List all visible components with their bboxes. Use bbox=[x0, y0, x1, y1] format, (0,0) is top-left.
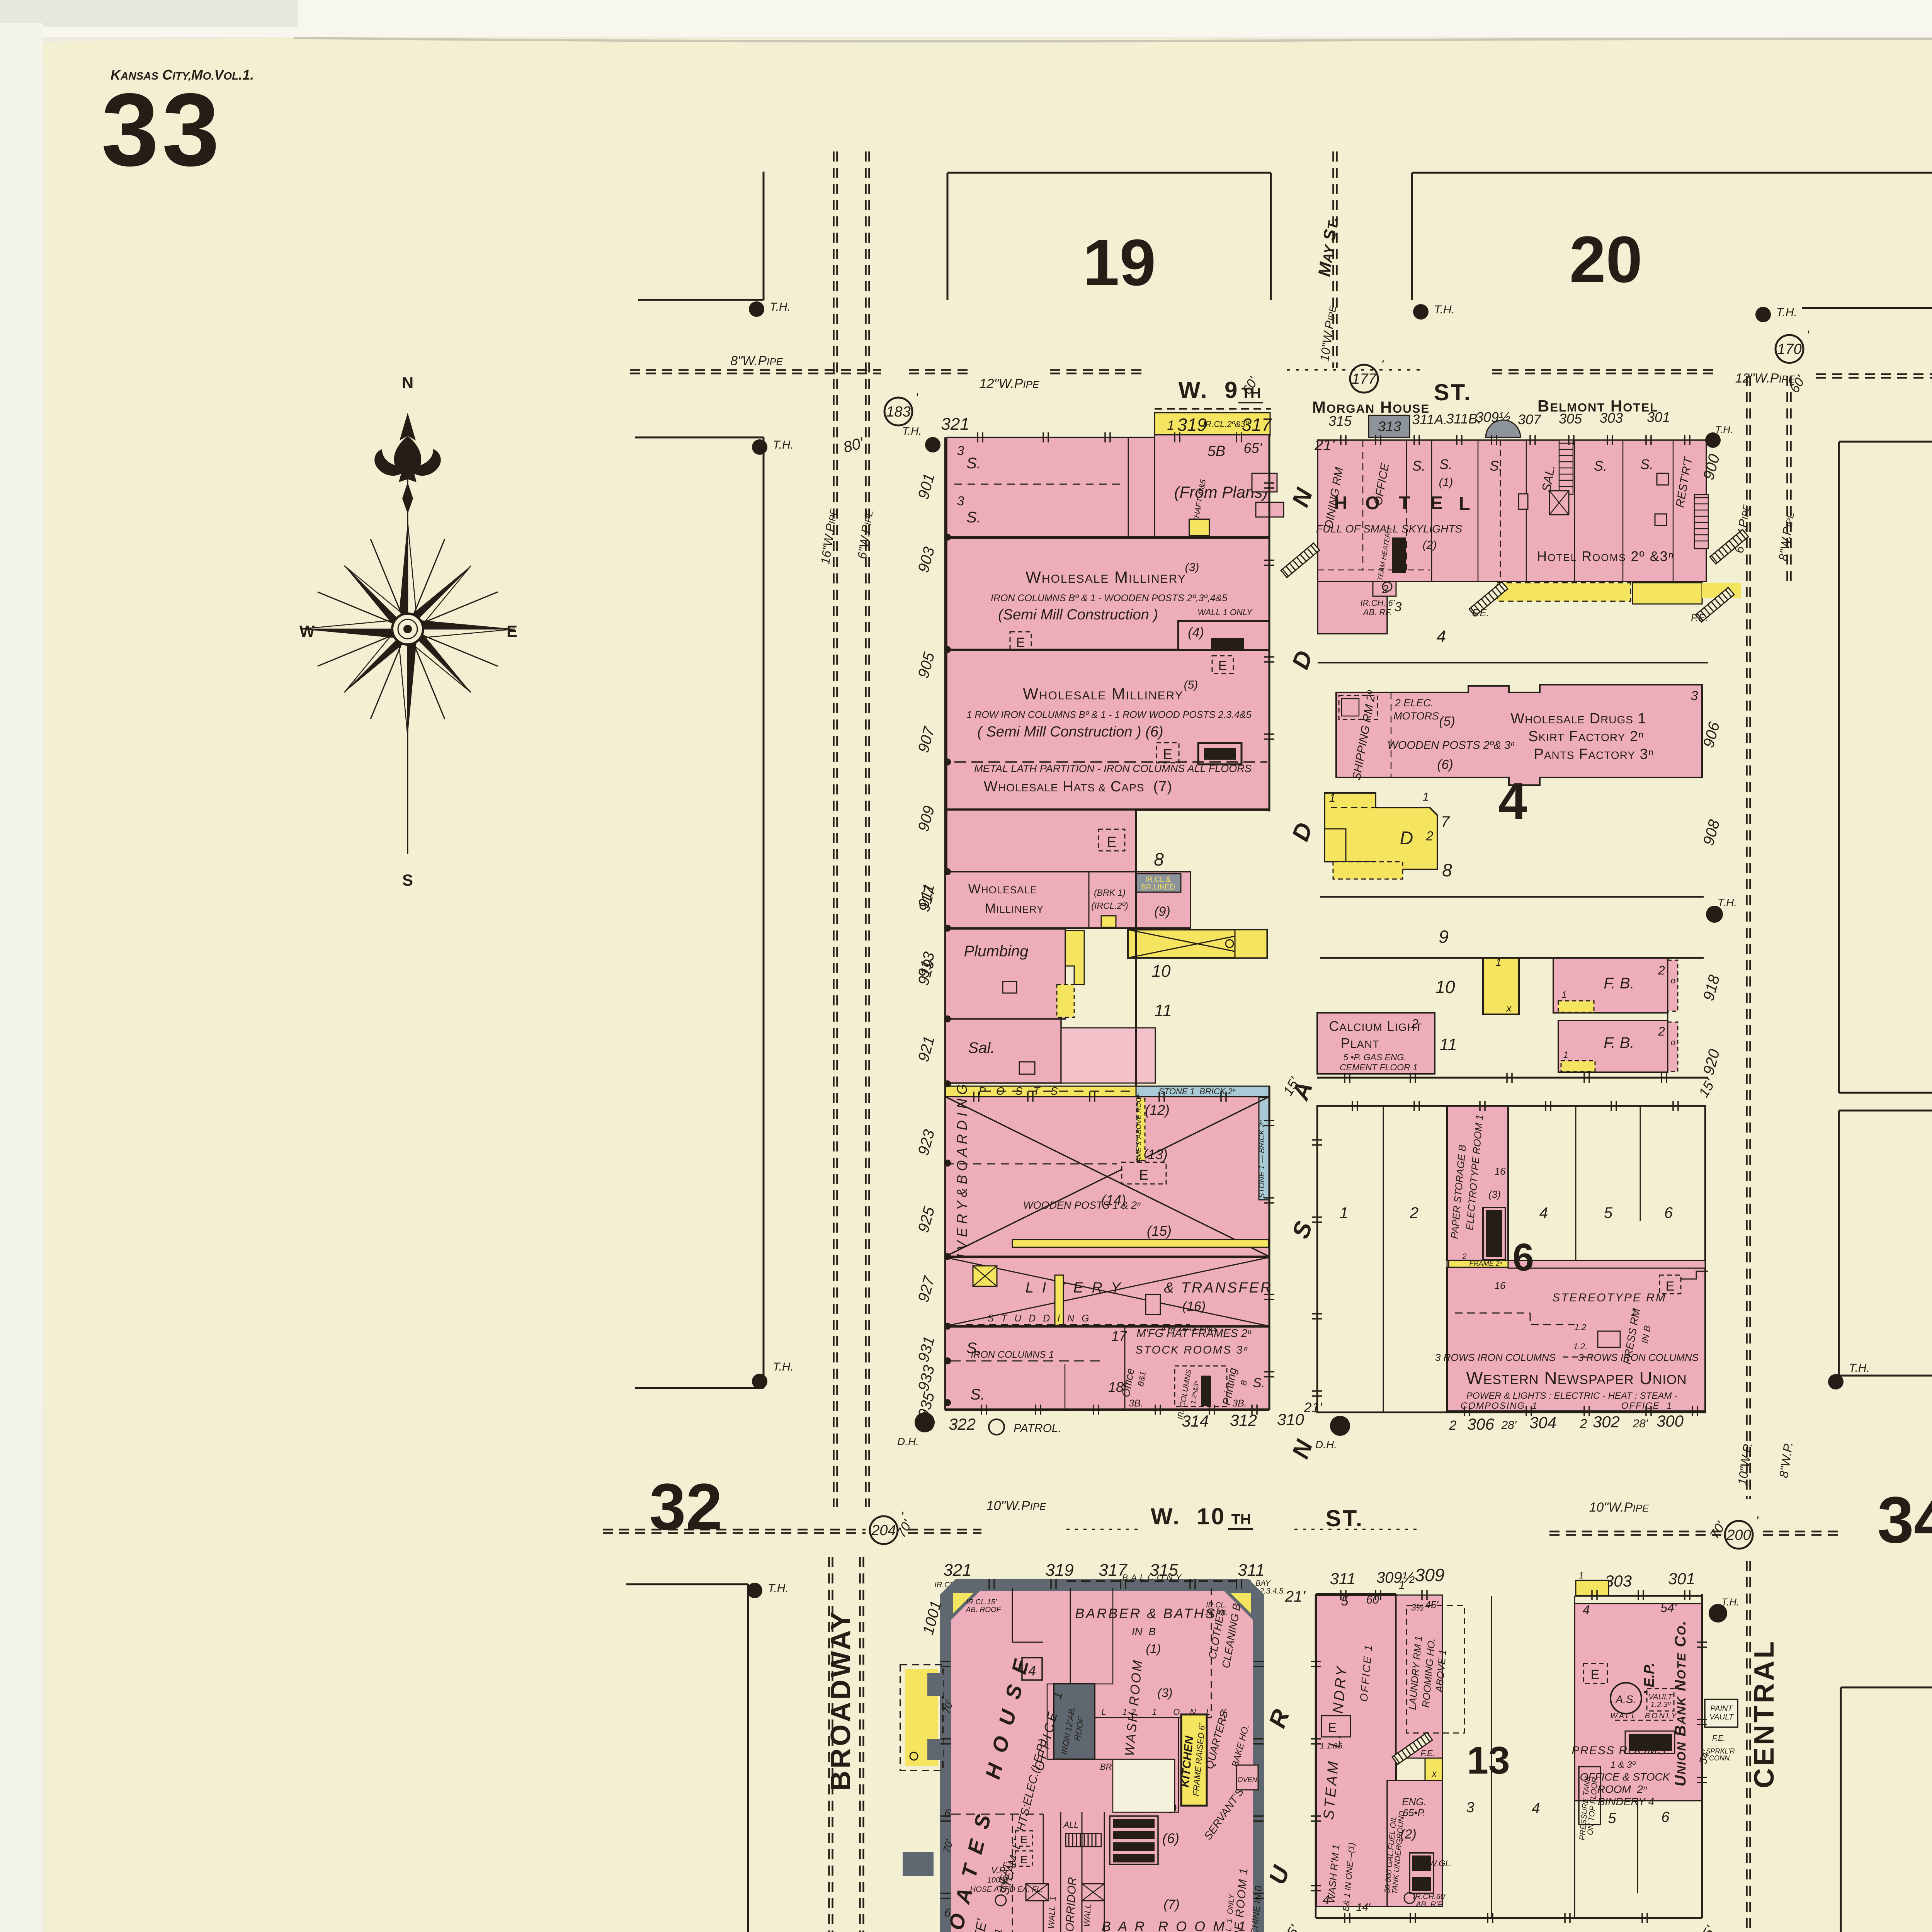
svg-text:200: 200 bbox=[1726, 1527, 1751, 1543]
svg-text:3B.: 3B. bbox=[1129, 1398, 1143, 1409]
svg-text:(IRCL.2º): (IRCL.2º) bbox=[1091, 901, 1128, 911]
svg-text:4: 4 bbox=[1539, 1204, 1548, 1221]
svg-text:S.: S. bbox=[966, 509, 981, 526]
svg-text:WALL 1⁯ ONLY: WALL 1⁯ ONLY bbox=[1197, 607, 1253, 617]
svg-text:BR.LINED: BR.LINED bbox=[1141, 883, 1175, 891]
svg-text:(3): (3) bbox=[1185, 561, 1199, 574]
svg-text:8"W.PIPE: 8"W.PIPE bbox=[730, 354, 783, 368]
svg-text:IR.CH.60’: IR.CH.60’ bbox=[1413, 1893, 1447, 1901]
svg-text:BROADWAY: BROADWAY bbox=[825, 1609, 856, 1791]
svg-text:S T U D D I N G: S T U D D I N G bbox=[987, 1313, 1091, 1324]
svg-text:10: 10 bbox=[1152, 962, 1171, 981]
svg-text:1: 1 bbox=[1495, 956, 1502, 968]
svg-text:1⁯: 1⁯ bbox=[1222, 1714, 1226, 1722]
svg-text:322: 322 bbox=[949, 1415, 976, 1433]
svg-text:311: 311 bbox=[1238, 1561, 1265, 1580]
svg-text:E: E bbox=[1016, 635, 1025, 650]
svg-text:POWER & LIGHTS : ELECTRIC - HE: POWER & LIGHTS : ELECTRIC - HEAT : STEAM… bbox=[1466, 1391, 1677, 1401]
svg-text:(BRK 1⁯): (BRK 1⁯) bbox=[1094, 888, 1126, 898]
svg-text:E: E bbox=[1139, 1167, 1148, 1183]
svg-text:(7): (7) bbox=[1163, 1897, 1180, 1912]
svg-text:3: 3 bbox=[957, 444, 964, 458]
svg-text:ALL: ALL bbox=[1063, 1820, 1078, 1830]
svg-text:5B: 5B bbox=[1207, 443, 1225, 459]
svg-text:W. 10: W. 10 bbox=[1151, 1503, 1226, 1529]
svg-text:(6): (6) bbox=[1162, 1830, 1179, 1846]
svg-text:10"W.PIPE: 10"W.PIPE bbox=[986, 1498, 1046, 1513]
svg-text:65•P.: 65•P. bbox=[1403, 1807, 1425, 1818]
svg-text:3B.: 3B. bbox=[1232, 1398, 1247, 1409]
svg-text:306: 306 bbox=[1467, 1415, 1495, 1433]
svg-text:3: 3 bbox=[1466, 1799, 1474, 1816]
svg-text:310: 310 bbox=[1277, 1410, 1304, 1429]
svg-text:5: 5 bbox=[1341, 1594, 1349, 1609]
svg-text:E: E bbox=[1328, 1721, 1336, 1735]
svg-text:(16): (16) bbox=[1182, 1299, 1206, 1314]
svg-text:11: 11 bbox=[1154, 1001, 1172, 1020]
svg-text:(2): (2) bbox=[1423, 539, 1437, 551]
svg-text:METAL LATH PARTITION - IRON CO: METAL LATH PARTITION - IRON COLUMNS ALL … bbox=[974, 763, 1252, 774]
svg-text:(5): (5) bbox=[1184, 679, 1198, 691]
svg-text:T.H.: T.H. bbox=[773, 1361, 794, 1373]
svg-text:WALL B⁯ONLY: WALL B⁯ONLY bbox=[1610, 1712, 1678, 1720]
svg-text:6: 6 bbox=[1661, 1809, 1670, 1825]
svg-text:W.GL.: W.GL. bbox=[1429, 1859, 1452, 1868]
svg-text:HOSE ATT’D EA. FL.: HOSE ATT’D EA. FL. bbox=[970, 1885, 1043, 1894]
svg-text:3 ROWS IRON COLUMNS: 3 ROWS IRON COLUMNS bbox=[1578, 1352, 1699, 1363]
svg-text:S.: S. bbox=[966, 455, 981, 472]
svg-text:4: 4 bbox=[1437, 627, 1446, 646]
svg-text:T: T bbox=[1399, 493, 1410, 514]
svg-text:(9): (9) bbox=[1154, 904, 1170, 919]
svg-text:309½: 309½ bbox=[1376, 1569, 1415, 1586]
svg-text:2: 2 bbox=[1410, 1204, 1418, 1221]
svg-text:45': 45' bbox=[1425, 1599, 1439, 1611]
svg-text:UNION BANK NOTE CO.: UNION BANK NOTE CO. bbox=[1672, 1620, 1689, 1787]
svg-text:STONE 1⁯ BRICK 2ⁿ: STONE 1⁯ BRICK 2ⁿ bbox=[1158, 1087, 1236, 1096]
svg-text:1: 1 bbox=[1399, 1579, 1405, 1592]
svg-text:E: E bbox=[1591, 1667, 1600, 1682]
svg-text:17: 17 bbox=[1111, 1328, 1128, 1344]
svg-text:STONE 1⁯ — BRICK 2ⁿ: STONE 1⁯ — BRICK 2ⁿ bbox=[1258, 1120, 1266, 1198]
svg-text:S.: S. bbox=[1490, 458, 1503, 474]
svg-text:16: 16 bbox=[1495, 1165, 1506, 1177]
svg-text:9: 9 bbox=[1439, 927, 1449, 947]
svg-text:(3): (3) bbox=[1488, 1189, 1501, 1200]
svg-text:W: W bbox=[299, 622, 315, 640]
svg-text:309: 309 bbox=[1415, 1565, 1445, 1585]
svg-text:BINDERY 4⁯: BINDERY 4⁯ bbox=[1598, 1796, 1654, 1808]
svg-text:2: 2 bbox=[1426, 829, 1434, 844]
svg-text:T.H.: T.H. bbox=[1715, 423, 1733, 435]
svg-text:317: 317 bbox=[1242, 415, 1272, 435]
svg-text:3: 3 bbox=[1691, 689, 1698, 703]
svg-text:T.H.: T.H. bbox=[1849, 1362, 1870, 1374]
svg-text:F. B.: F. B. bbox=[1604, 1034, 1634, 1051]
svg-text:28': 28' bbox=[1632, 1417, 1648, 1430]
svg-text:3 ROWS IRON COLUMNS: 3 ROWS IRON COLUMNS bbox=[1435, 1352, 1556, 1363]
svg-text:IRON COLUMNS 1⁯: IRON COLUMNS 1⁯ bbox=[971, 1349, 1054, 1360]
svg-text:177: 177 bbox=[1352, 371, 1377, 387]
svg-text:2: 2 bbox=[1449, 1418, 1457, 1433]
svg-text:2: 2 bbox=[1580, 1417, 1587, 1431]
svg-text:1: 1 bbox=[1423, 791, 1429, 803]
svg-text:5 •P. GAS ENG.: 5 •P. GAS ENG. bbox=[1343, 1052, 1406, 1062]
svg-text:319: 319 bbox=[1177, 415, 1207, 435]
svg-text:(1): (1) bbox=[1439, 476, 1453, 489]
svg-text:34: 34 bbox=[1877, 1483, 1932, 1557]
svg-text:5: 5 bbox=[1604, 1204, 1613, 1221]
svg-text:ST.: ST. bbox=[1326, 1505, 1364, 1531]
svg-text:6: 6 bbox=[1512, 1236, 1534, 1279]
svg-text:4 •P. GAS ENG.: 4 •P. GAS ENG. bbox=[1161, 1324, 1219, 1333]
svg-text:&: & bbox=[1164, 1280, 1173, 1296]
svg-text:301: 301 bbox=[1668, 1570, 1695, 1588]
svg-text:1: 1 bbox=[1578, 1570, 1583, 1581]
svg-text:T.H.: T.H. bbox=[1718, 896, 1737, 908]
svg-text:2: 2 bbox=[1658, 1024, 1665, 1038]
svg-text:VAULT: VAULT bbox=[1709, 1713, 1734, 1721]
svg-text:10: 10 bbox=[1435, 977, 1455, 997]
svg-text:N: N bbox=[402, 374, 413, 392]
svg-text:21': 21' bbox=[1285, 1588, 1306, 1605]
svg-text:T.H.: T.H. bbox=[773, 439, 794, 451]
svg-text:E: E bbox=[507, 622, 517, 640]
svg-text:3: 3 bbox=[957, 494, 964, 509]
svg-text:11: 11 bbox=[1439, 1035, 1457, 1054]
svg-text:PAINT: PAINT bbox=[1710, 1704, 1733, 1713]
svg-text:304: 304 bbox=[1529, 1413, 1556, 1432]
svg-text:STEREOTYPE RM: STEREOTYPE RM bbox=[1552, 1291, 1667, 1304]
svg-text:4: 4 bbox=[1498, 772, 1527, 830]
svg-text:o: o bbox=[1671, 1037, 1675, 1047]
svg-text:ENG.: ENG. bbox=[1402, 1796, 1427, 1808]
svg-text:(Semi Mill Construction ): (Semi Mill Construction ) bbox=[998, 607, 1158, 623]
svg-text:13: 13 bbox=[1467, 1739, 1510, 1782]
svg-text:F.E.: F.E. bbox=[1691, 612, 1708, 624]
svg-text:321: 321 bbox=[943, 1561, 971, 1580]
svg-text:IR.CL.&: IR.CL.& bbox=[1145, 876, 1171, 884]
svg-text:WHOLESALE: WHOLESALE bbox=[968, 882, 1037, 896]
svg-text:183: 183 bbox=[886, 404, 910, 420]
svg-text:5: 5 bbox=[1608, 1810, 1616, 1827]
svg-text:( Semi Mill Construction ) (6): ( Semi Mill Construction ) (6) bbox=[977, 724, 1163, 740]
svg-text:(5): (5) bbox=[1439, 714, 1455, 729]
svg-text:300: 300 bbox=[1656, 1412, 1684, 1430]
svg-text:L: L bbox=[1459, 494, 1470, 514]
svg-text:ROOM 2ⁿ: ROOM 2ⁿ bbox=[1597, 1783, 1647, 1795]
svg-text:20: 20 bbox=[1569, 223, 1642, 296]
svg-text:10"W.PIPE: 10"W.PIPE bbox=[1589, 1500, 1649, 1515]
svg-text:204: 204 bbox=[871, 1522, 896, 1539]
svg-text:E: E bbox=[1020, 1833, 1028, 1845]
svg-text:(13): (13) bbox=[1143, 1146, 1168, 1162]
svg-text:STOCK ROOMS 3ⁿ: STOCK ROOMS 3ⁿ bbox=[1135, 1344, 1249, 1356]
svg-text:100’½: 100’½ bbox=[987, 1876, 1009, 1884]
svg-text:F. B.: F. B. bbox=[1604, 975, 1634, 992]
svg-text:o: o bbox=[1671, 976, 1675, 985]
svg-text:3½: 3½ bbox=[1411, 1602, 1423, 1613]
svg-text:E: E bbox=[1430, 493, 1443, 514]
svg-text:E: E bbox=[1163, 746, 1172, 762]
svg-text:12"W.PIPE: 12"W.PIPE bbox=[980, 376, 1039, 391]
svg-text:(6): (6) bbox=[1437, 757, 1453, 772]
svg-text:IRON COLUMNS Bº & 1⁯ - WOODEN: IRON COLUMNS Bº & 1⁯ - WOODEN POSTS 2º,3… bbox=[991, 593, 1227, 604]
svg-text:A.S.: A.S. bbox=[1615, 1693, 1636, 1705]
svg-text:T.H.: T.H. bbox=[1434, 303, 1455, 316]
svg-text:S.: S. bbox=[1594, 458, 1607, 474]
svg-text:8: 8 bbox=[1154, 849, 1164, 869]
svg-text:1.2: 1.2 bbox=[1575, 1322, 1587, 1332]
svg-text:1⁯ & 3º: 1⁯ & 3º bbox=[1611, 1760, 1636, 1770]
svg-text:315: 315 bbox=[1328, 413, 1352, 429]
svg-text:IR.CL.15’: IR.CL.15’ bbox=[966, 1598, 997, 1606]
svg-text:L I V E R Y: L I V E R Y bbox=[1026, 1280, 1123, 1296]
svg-text:1: 1 bbox=[1563, 1050, 1568, 1060]
svg-text:1: 1 bbox=[1340, 1204, 1348, 1221]
svg-text:6: 6 bbox=[1664, 1204, 1673, 1221]
svg-text:TH: TH bbox=[1242, 385, 1261, 401]
svg-text:21': 21' bbox=[1314, 437, 1335, 454]
svg-text:303: 303 bbox=[1600, 410, 1623, 426]
svg-text:CENTRAL: CENTRAL bbox=[1749, 1639, 1780, 1788]
svg-text:MILLINERY: MILLINERY bbox=[985, 901, 1044, 916]
svg-text:302: 302 bbox=[1593, 1413, 1620, 1431]
svg-text:4: 4 bbox=[1583, 1603, 1590, 1617]
svg-text:IR.CH. 6’: IR.CH. 6’ bbox=[1360, 598, 1395, 608]
svg-text:S: S bbox=[402, 871, 413, 889]
svg-text:2: 2 bbox=[1658, 963, 1665, 977]
svg-text:(3): (3) bbox=[1157, 1686, 1172, 1700]
svg-text:28': 28' bbox=[1501, 1419, 1517, 1432]
svg-text:S.: S. bbox=[1439, 456, 1452, 472]
svg-text:TH: TH bbox=[1231, 1512, 1251, 1528]
svg-text:F.E.: F.E. bbox=[1472, 607, 1489, 619]
svg-text:312: 312 bbox=[1230, 1411, 1257, 1429]
svg-text:321: 321 bbox=[941, 415, 969, 434]
svg-text:313: 313 bbox=[1378, 418, 1401, 434]
svg-text:VAULT: VAULT bbox=[1648, 1693, 1673, 1701]
svg-text:319: 319 bbox=[1045, 1561, 1073, 1580]
svg-text:PATROL.: PATROL. bbox=[1014, 1422, 1061, 1435]
svg-text:170: 170 bbox=[1777, 341, 1801, 357]
svg-text:311A.: 311A. bbox=[1412, 412, 1447, 427]
svg-text:E: E bbox=[1666, 1279, 1675, 1294]
svg-text:Sal.: Sal. bbox=[968, 1039, 995, 1056]
svg-text:14': 14' bbox=[1356, 1901, 1371, 1913]
svg-text:TRANSFER: TRANSFER bbox=[1181, 1280, 1273, 1296]
svg-text:F.E.: F.E. bbox=[1712, 1734, 1725, 1743]
svg-text:2: 2 bbox=[1411, 1017, 1418, 1031]
svg-text:Plumbing: Plumbing bbox=[964, 943, 1029, 960]
svg-text:OVEN: OVEN bbox=[1237, 1776, 1257, 1784]
svg-text:S.: S. bbox=[1412, 458, 1425, 474]
svg-text:8: 8 bbox=[1442, 860, 1452, 880]
svg-text:S.: S. bbox=[970, 1386, 985, 1403]
svg-text:AB. ROOF: AB. ROOF bbox=[966, 1606, 1002, 1614]
svg-text:307: 307 bbox=[1518, 412, 1542, 427]
svg-text:60': 60' bbox=[1366, 1594, 1381, 1606]
svg-text:S.: S. bbox=[1253, 1376, 1265, 1390]
svg-text:MOTORS: MOTORS bbox=[1393, 710, 1439, 722]
svg-text:WOODEN POSTS 1⁯ & 2ⁿ: WOODEN POSTS 1⁯ & 2ⁿ bbox=[1023, 1199, 1141, 1211]
svg-text:314: 314 bbox=[1182, 1412, 1209, 1430]
svg-text:4: 4 bbox=[1323, 1893, 1330, 1907]
svg-text:1.2.: 1.2. bbox=[1573, 1342, 1588, 1351]
svg-text:ST.: ST. bbox=[1434, 379, 1472, 405]
svg-text:P O S T S: P O S T S bbox=[979, 1085, 1062, 1097]
svg-text:2 ELEC.: 2 ELEC. bbox=[1395, 697, 1434, 709]
svg-text:CEMENT FLOOR 1⁯: CEMENT FLOOR 1⁯ bbox=[1340, 1062, 1418, 1072]
svg-text:WOODEN POSTS 2º& 3ⁿ: WOODEN POSTS 2º& 3ⁿ bbox=[1388, 739, 1515, 752]
svg-text:65': 65' bbox=[1244, 440, 1262, 456]
svg-text:L I V E R Y & B O A R D I N G: L I V E R Y & B O A R D I N G bbox=[954, 1084, 970, 1269]
svg-text:1.1.&5.: 1.1.&5. bbox=[1320, 1742, 1344, 1750]
svg-text:54': 54' bbox=[1660, 1601, 1677, 1615]
svg-text:6: 6 bbox=[944, 1906, 951, 1919]
svg-text:3: 3 bbox=[1395, 600, 1402, 614]
svg-text:1: 1 bbox=[1329, 792, 1336, 804]
svg-text:S.: S. bbox=[1640, 456, 1653, 472]
svg-text:T.H.: T.H. bbox=[768, 1582, 789, 1595]
svg-text:D.H.: D.H. bbox=[897, 1435, 919, 1447]
svg-text:19: 19 bbox=[1083, 226, 1156, 299]
svg-text:AB. R’F.: AB. R’F. bbox=[1415, 1900, 1444, 1909]
svg-text:1 ROW IRON COLUMNS Bº & 1⁯ - 1: 1 ROW IRON COLUMNS Bº & 1⁯ - 1 ROW WOOD … bbox=[966, 709, 1251, 720]
svg-text:CONN.: CONN. bbox=[1709, 1754, 1731, 1762]
svg-text:OFFICE 1⁯: OFFICE 1⁯ bbox=[1621, 1401, 1673, 1411]
svg-text:H: H bbox=[1334, 493, 1348, 514]
svg-text:O: O bbox=[1365, 493, 1379, 514]
svg-text:311: 311 bbox=[1330, 1570, 1356, 1588]
svg-text:16: 16 bbox=[1495, 1280, 1506, 1291]
svg-text:D: D bbox=[1400, 828, 1413, 849]
svg-text:1: 1 bbox=[1561, 990, 1566, 1000]
svg-text:(12): (12) bbox=[1145, 1102, 1170, 1118]
svg-text:T.H.: T.H. bbox=[770, 301, 791, 313]
svg-text:T.H.: T.H. bbox=[1776, 306, 1797, 319]
svg-text:x: x bbox=[1432, 1769, 1437, 1779]
svg-text:FRAME 3’ ABOVE ROOF: FRAME 3’ ABOVE ROOF bbox=[1135, 1092, 1143, 1172]
svg-text:x: x bbox=[1506, 1002, 1512, 1014]
svg-text:E: E bbox=[1020, 1854, 1028, 1866]
svg-text:6: 6 bbox=[944, 1807, 951, 1820]
svg-text:1.2.3º: 1.2.3º bbox=[1650, 1701, 1671, 1709]
svg-text:FRAME 2ⁿ: FRAME 2ⁿ bbox=[1469, 1260, 1502, 1267]
svg-text:BALCONY: BALCONY bbox=[1122, 1573, 1184, 1582]
svg-text:V.P.: V.P. bbox=[991, 1865, 1007, 1876]
svg-text:(1): (1) bbox=[1146, 1642, 1161, 1656]
svg-text:T.H.: T.H. bbox=[902, 425, 922, 437]
svg-text:BARBER & BATHS: BARBER & BATHS bbox=[1075, 1605, 1216, 1621]
svg-text:IN B⁯: IN B⁯ bbox=[1132, 1626, 1156, 1638]
svg-text:(4): (4) bbox=[1188, 625, 1204, 640]
svg-text:T.H.: T.H. bbox=[1721, 1596, 1740, 1608]
svg-text:D.H.: D.H. bbox=[1315, 1439, 1337, 1451]
svg-text:21': 21' bbox=[1304, 1400, 1323, 1415]
svg-text:305: 305 bbox=[1559, 411, 1582, 427]
svg-text:7: 7 bbox=[1441, 813, 1450, 830]
svg-text:(15): (15) bbox=[1147, 1223, 1172, 1239]
svg-text:W. 9: W. 9 bbox=[1179, 377, 1239, 403]
svg-text:33: 33 bbox=[101, 71, 223, 187]
svg-text:301: 301 bbox=[1647, 409, 1670, 425]
svg-text:E: E bbox=[1107, 834, 1116, 850]
svg-text:E: E bbox=[1218, 658, 1227, 673]
svg-text:12"W.PIPE: 12"W.PIPE bbox=[1735, 371, 1795, 386]
svg-text:SPRKL’R: SPRKL’R bbox=[1706, 1747, 1735, 1755]
svg-text:4: 4 bbox=[1532, 1800, 1540, 1816]
svg-text:AB. RF.: AB. RF. bbox=[1362, 607, 1392, 617]
svg-text:1: 1 bbox=[1167, 418, 1175, 433]
svg-text:2: 2 bbox=[1462, 1252, 1466, 1261]
svg-text:F.E.: F.E. bbox=[1420, 1748, 1435, 1758]
